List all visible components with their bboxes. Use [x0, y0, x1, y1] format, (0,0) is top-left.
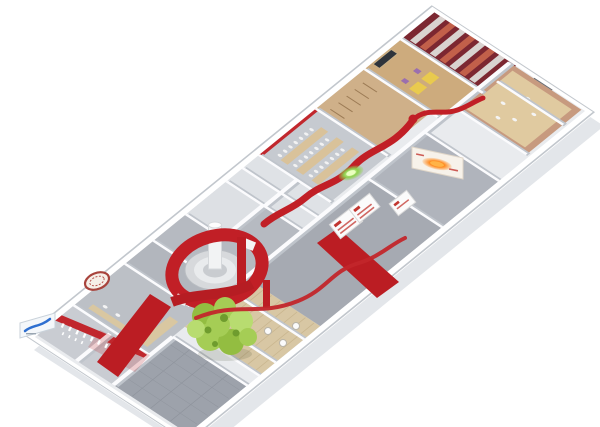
red-route-start-dot: [409, 115, 418, 124]
floorplan-render: [0, 0, 600, 427]
render-canvas: [0, 0, 600, 427]
